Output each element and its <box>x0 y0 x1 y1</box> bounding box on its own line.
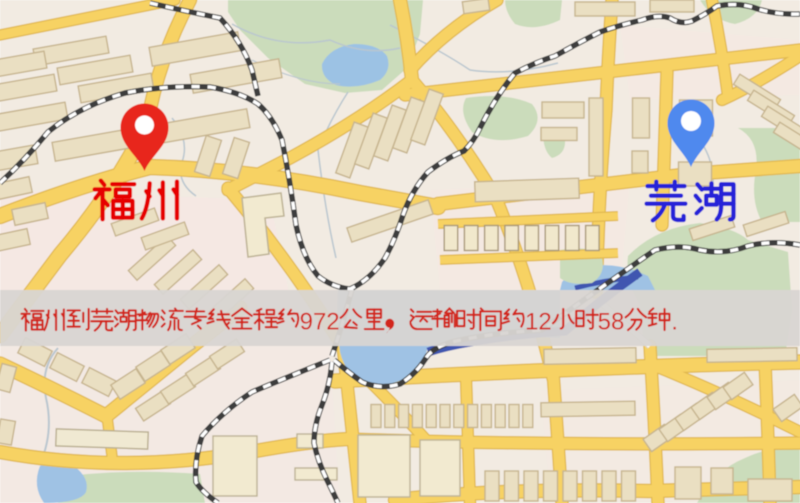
svg-text:.: . <box>671 309 678 336</box>
svg-text:58: 58 <box>598 309 625 336</box>
svg-text:12: 12 <box>525 309 552 336</box>
svg-text:972: 972 <box>300 309 340 336</box>
